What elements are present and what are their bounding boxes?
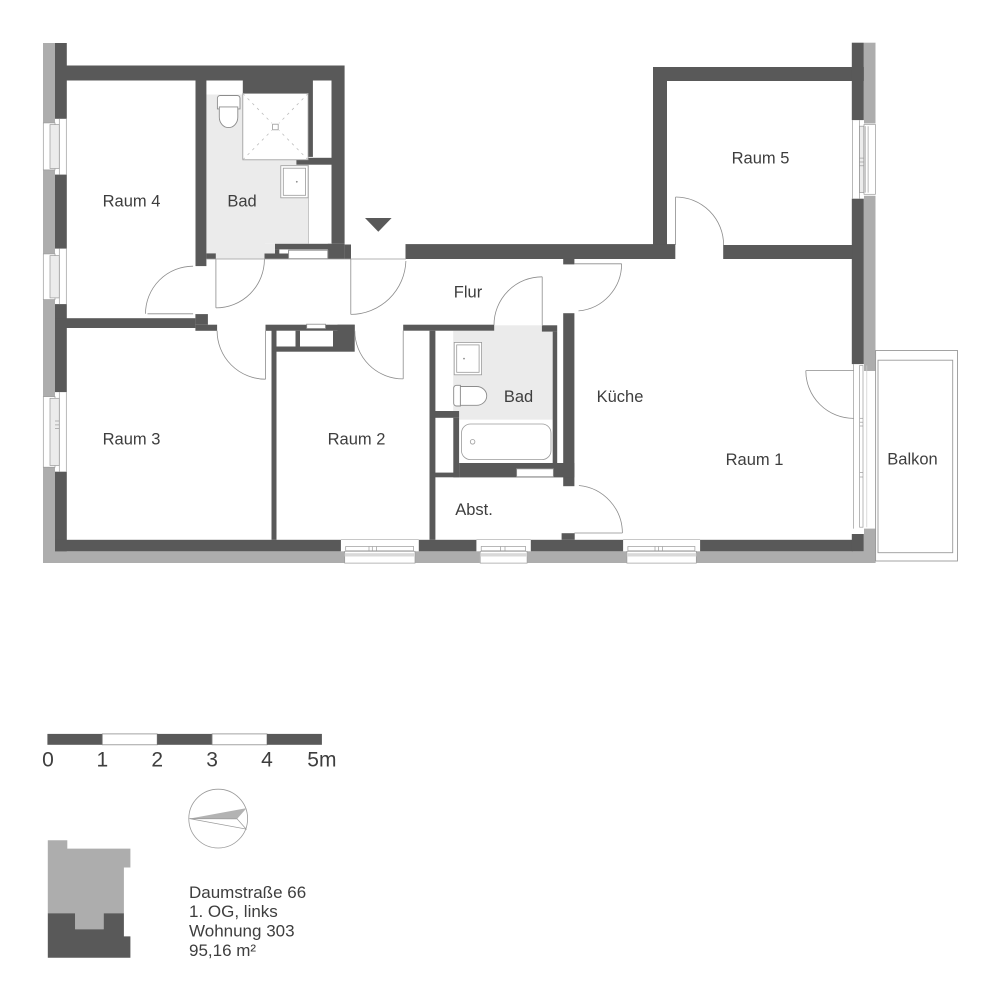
svg-text:3: 3	[206, 749, 218, 772]
svg-text:Bad: Bad	[504, 388, 533, 406]
svg-text:Raum 2: Raum 2	[328, 431, 386, 449]
svg-text:4: 4	[261, 749, 273, 772]
svg-text:Wohnung 303: Wohnung 303	[189, 922, 295, 941]
svg-text:Abst.: Abst.	[455, 501, 493, 519]
svg-text:Bad: Bad	[227, 193, 256, 211]
svg-text:Küche: Küche	[597, 388, 644, 406]
svg-text:1: 1	[96, 749, 108, 772]
svg-text:Raum 1: Raum 1	[726, 451, 784, 469]
svg-text:Raum 5: Raum 5	[732, 150, 790, 168]
svg-text:Flur: Flur	[454, 284, 483, 302]
svg-text:Balkon: Balkon	[887, 451, 937, 469]
svg-text:1. OG, links: 1. OG, links	[189, 902, 278, 921]
svg-text:Raum 3: Raum 3	[103, 431, 161, 449]
svg-text:Raum 4: Raum 4	[103, 193, 161, 211]
svg-text:95,16 m²: 95,16 m²	[189, 941, 256, 960]
svg-text:0: 0	[42, 749, 54, 772]
svg-text:Daumstraße 66: Daumstraße 66	[189, 883, 306, 902]
svg-text:5m: 5m	[307, 749, 336, 772]
svg-text:2: 2	[151, 749, 163, 772]
